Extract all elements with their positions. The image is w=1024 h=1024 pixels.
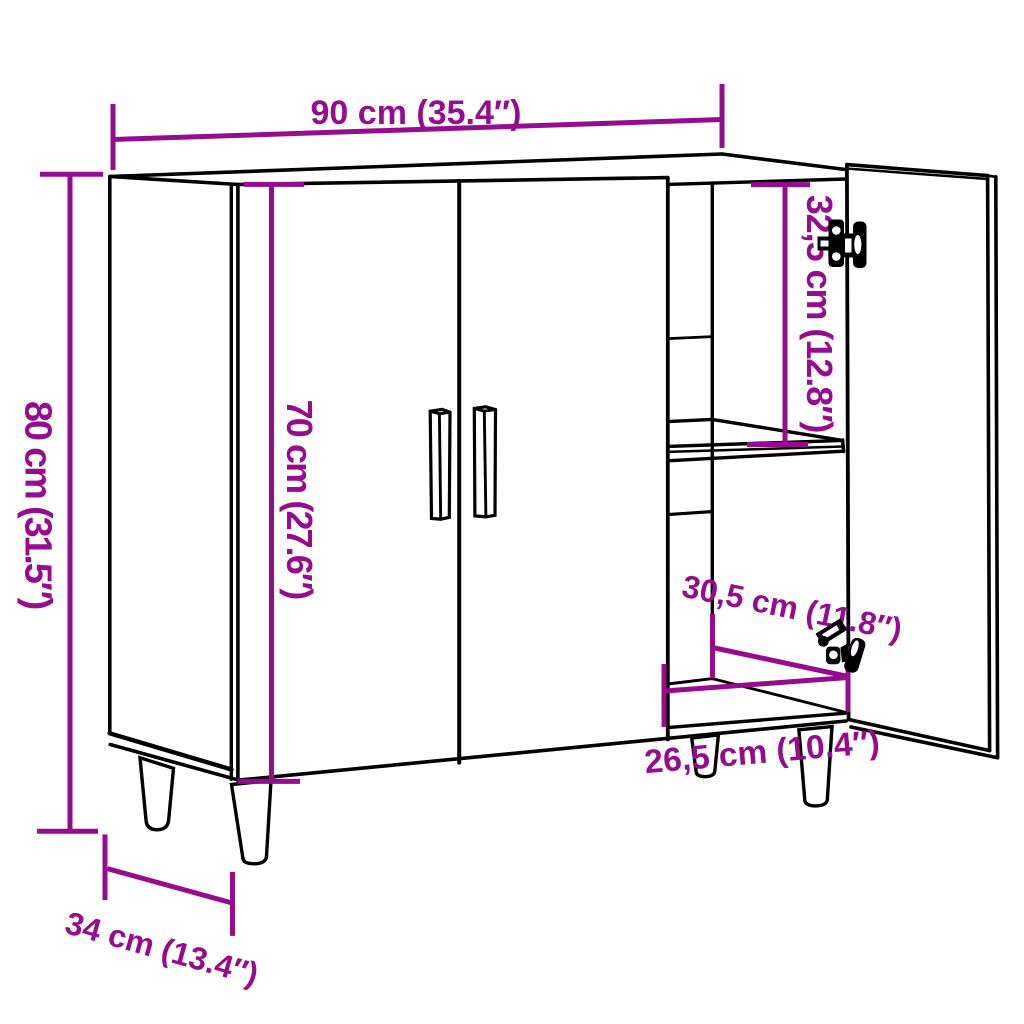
svg-text:70 cm (27.6″): 70 cm (27.6″) [279, 400, 320, 600]
svg-text:80 cm (31.5″): 80 cm (31.5″) [17, 401, 59, 609]
svg-text:90 cm (35.4″): 90 cm (35.4″) [311, 94, 522, 132]
